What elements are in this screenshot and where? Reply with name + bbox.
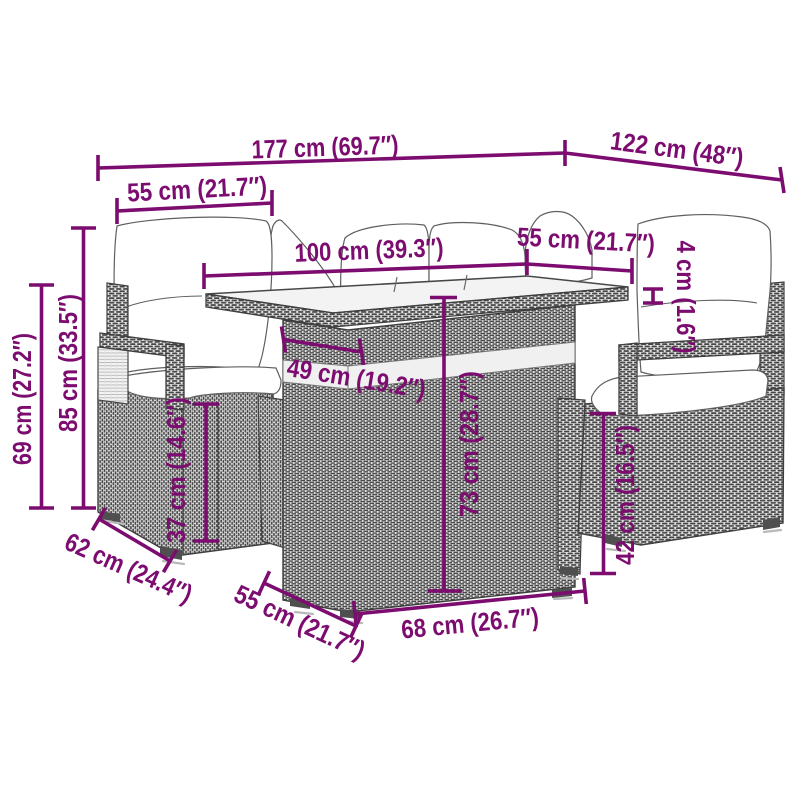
svg-text:177 cm (69.7″): 177 cm (69.7″) <box>251 129 399 164</box>
svg-text:85 cm (33.5″): 85 cm (33.5″) <box>53 294 83 432</box>
svg-text:4 cm (1.6″): 4 cm (1.6″) <box>671 241 701 354</box>
svg-text:37 cm (14.6″): 37 cm (14.6″) <box>161 397 191 543</box>
svg-text:69 cm (27.2″): 69 cm (27.2″) <box>7 333 37 465</box>
svg-text:42 cm (16.5″): 42 cm (16.5″) <box>610 425 640 565</box>
svg-text:73 cm (28.7″): 73 cm (28.7″) <box>454 371 484 517</box>
svg-text:100 cm (39.3″): 100 cm (39.3″) <box>294 232 444 268</box>
